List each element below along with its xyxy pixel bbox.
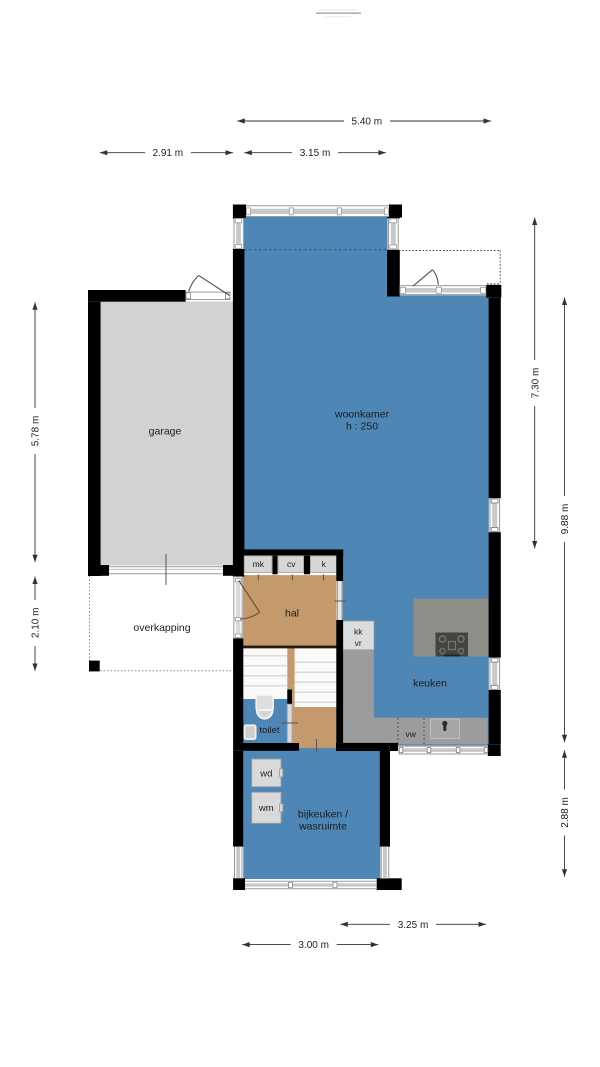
svg-text:overkapping: overkapping bbox=[133, 622, 190, 634]
svg-text:2.91 m: 2.91 m bbox=[153, 148, 184, 159]
svg-text:vr: vr bbox=[355, 638, 362, 648]
svg-text:k: k bbox=[322, 559, 327, 569]
svg-text:bijkeuken /: bijkeuken / bbox=[298, 809, 348, 821]
svg-text:mk: mk bbox=[253, 559, 265, 569]
svg-text:kk: kk bbox=[354, 627, 363, 637]
svg-text:2.88 m: 2.88 m bbox=[560, 797, 571, 828]
svg-text:wm: wm bbox=[258, 803, 274, 814]
svg-text:keuken: keuken bbox=[413, 678, 447, 690]
svg-text:vw: vw bbox=[406, 729, 417, 739]
svg-text:h : 250: h : 250 bbox=[346, 421, 378, 433]
svg-text:5.40 m: 5.40 m bbox=[352, 117, 383, 128]
svg-text:5.78 m: 5.78 m bbox=[31, 416, 42, 447]
svg-text:cv: cv bbox=[287, 559, 296, 569]
svg-text:3.00 m: 3.00 m bbox=[298, 940, 329, 951]
svg-text:9.88 m: 9.88 m bbox=[560, 504, 571, 535]
svg-text:2.10 m: 2.10 m bbox=[31, 608, 42, 639]
svg-text:wasruimte: wasruimte bbox=[298, 821, 347, 833]
svg-text:garage: garage bbox=[149, 426, 182, 438]
svg-text:3.25 m: 3.25 m bbox=[398, 920, 429, 931]
svg-text:wd: wd bbox=[259, 769, 272, 780]
svg-text:toilet: toilet bbox=[259, 725, 279, 736]
svg-text:3.15 m: 3.15 m bbox=[300, 148, 331, 159]
svg-text:7.30 m: 7.30 m bbox=[530, 368, 541, 399]
svg-text:woonkamer: woonkamer bbox=[334, 409, 390, 421]
svg-text:hal: hal bbox=[285, 608, 299, 620]
